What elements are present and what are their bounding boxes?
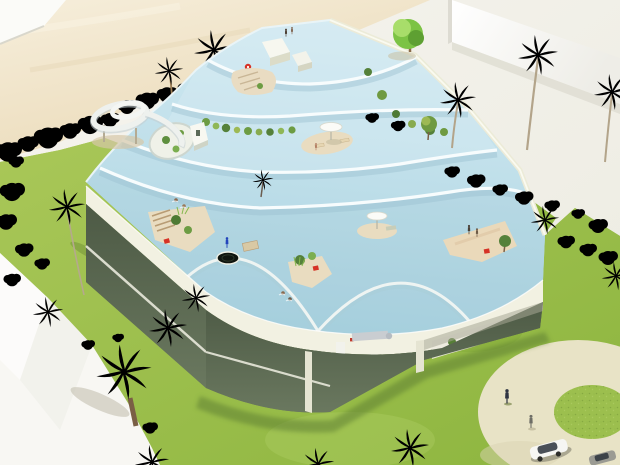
parasol <box>367 212 387 220</box>
tree-shadow <box>388 52 416 61</box>
parasol <box>320 123 342 132</box>
rooftop-sand-alcove <box>231 68 276 95</box>
architectural-rendering <box>0 0 620 465</box>
wall-left-edge <box>448 0 452 44</box>
facade-pier <box>416 340 424 373</box>
kitchen-counter <box>336 342 345 355</box>
small-tree <box>499 235 511 247</box>
red-deck-chair <box>484 248 490 253</box>
rendering-canvas <box>0 0 620 465</box>
trampoline <box>217 252 239 264</box>
facade-pier <box>305 351 312 413</box>
